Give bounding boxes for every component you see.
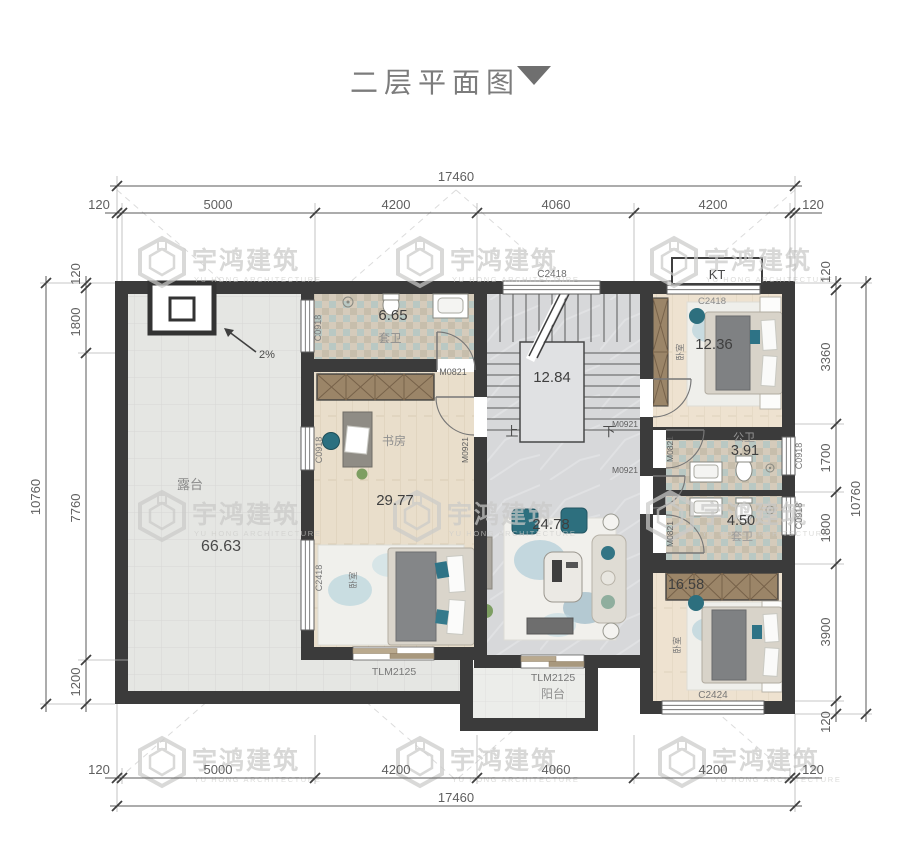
wall-left bbox=[115, 281, 128, 704]
terrace-floor bbox=[128, 294, 301, 660]
label-win-bedroom-tr: C2418 bbox=[698, 296, 726, 307]
dim-right-seg: 120 bbox=[818, 261, 833, 283]
floorplan-page: 宇鸿建筑 YU HONG ARCHITECTURE 二层平面图 bbox=[0, 0, 910, 857]
label-balcony: 阳台 bbox=[541, 686, 565, 701]
label-door-study: M0921 bbox=[460, 437, 470, 463]
dim-left-seg: 1800 bbox=[68, 308, 83, 337]
wall-ensuite-br-divider bbox=[666, 560, 795, 573]
area-bath-top: 6.65 bbox=[378, 307, 407, 324]
dim-left-seg: 1200 bbox=[68, 668, 83, 697]
label-win-bath-top: C0918 bbox=[313, 315, 323, 342]
dim-bottom-seg: 4200 bbox=[699, 762, 728, 777]
label-door-passage: M0921 bbox=[612, 465, 638, 475]
dim-right-total: 10760 bbox=[848, 481, 863, 517]
dim-top-total: 17460 bbox=[438, 169, 474, 184]
label-door-bedroom-tr: M0921 bbox=[612, 419, 638, 429]
wall-baths-divider bbox=[666, 490, 795, 496]
label-win-stair-top: C2418 bbox=[537, 269, 567, 280]
label-bedroom-tr: 卧室 bbox=[675, 343, 685, 361]
dim-top-seg: 120 bbox=[88, 197, 110, 212]
label-slope: 2% bbox=[259, 349, 275, 361]
dim-top-seg: 4200 bbox=[382, 197, 411, 212]
area-bedroom-tr: 12.36 bbox=[695, 336, 733, 353]
wall-balcony-bottom bbox=[460, 718, 598, 731]
label-bedroom-br: 卧室 bbox=[672, 636, 682, 654]
area-bath-ensuite: 4.50 bbox=[727, 513, 755, 529]
chimney bbox=[150, 283, 214, 333]
area-hall: 24.78 bbox=[532, 516, 570, 533]
slider-balcony bbox=[521, 655, 584, 668]
label-win-bedroom-left: C2418 bbox=[314, 565, 324, 592]
label-door-bath-shared: M0821 bbox=[665, 436, 675, 462]
dim-bottom-seg: 120 bbox=[88, 762, 110, 777]
dim-top-seg: 4060 bbox=[542, 197, 571, 212]
area-bath-shared: 3.91 bbox=[731, 443, 759, 459]
label-door-bath-top: M0821 bbox=[439, 367, 467, 377]
area-terrace: 66.63 bbox=[201, 538, 241, 555]
dim-top-seg: 5000 bbox=[204, 197, 233, 212]
dim-left-seg: 7760 bbox=[68, 494, 83, 523]
wall-study-hall-divider bbox=[474, 294, 487, 655]
label-terrace: 露台 bbox=[177, 477, 203, 492]
label-slider-balcony: TLM2125 bbox=[531, 672, 576, 684]
wall-bottom-left bbox=[115, 691, 473, 704]
dim-top-seg: 4200 bbox=[699, 197, 728, 212]
area-stairs: 12.84 bbox=[533, 369, 571, 386]
dim-bottom-seg: 5000 bbox=[204, 762, 233, 777]
bath-shared-floor bbox=[666, 440, 782, 490]
label-door-bath-ensuite: M0821 bbox=[665, 521, 675, 547]
window-bedroom-br bbox=[662, 701, 764, 714]
label-win-study: C0918 bbox=[314, 437, 324, 464]
label-win-bath-ensuite: C0918 bbox=[794, 503, 804, 530]
label-win-bath-shared: C0918 bbox=[794, 443, 804, 470]
dim-bottom-seg: 4200 bbox=[382, 762, 411, 777]
dim-right-seg: 120 bbox=[818, 711, 833, 733]
dim-right-seg: 3360 bbox=[818, 343, 833, 372]
label-win-bedroom-br: C2424 bbox=[698, 690, 728, 701]
dim-bottom-seg: 120 bbox=[802, 762, 824, 777]
dim-right-seg: 3900 bbox=[818, 618, 833, 647]
label-study: 书房 bbox=[382, 433, 406, 448]
window-bedroom-left bbox=[301, 540, 314, 630]
label-bedroom-left: 卧室 bbox=[348, 571, 358, 589]
area-bedroom-br: 16.58 bbox=[668, 577, 704, 593]
title-triangle-icon bbox=[517, 66, 551, 85]
label-bath-top: 套卫 bbox=[379, 332, 402, 345]
label-slider-bedroom-left: TLM2125 bbox=[372, 666, 417, 678]
dim-right-seg: 1700 bbox=[818, 444, 833, 473]
watermark bbox=[140, 238, 321, 286]
page-title: 二层平面图 bbox=[350, 67, 520, 98]
area-bedroom-left: 29.77 bbox=[376, 492, 414, 509]
window-study bbox=[301, 427, 314, 470]
dim-left-seg: 120 bbox=[68, 263, 83, 285]
label-ac-platform: KT bbox=[709, 267, 726, 282]
wall-balcony-right bbox=[585, 655, 598, 731]
bed-bedroom-left bbox=[318, 545, 474, 645]
label-stairs-up: 上 bbox=[505, 424, 518, 439]
label-bath-ensuite: 套卫 bbox=[731, 530, 753, 543]
wardrobe-study bbox=[317, 374, 434, 400]
slider-bedroom-left bbox=[353, 647, 434, 660]
wall-hall-bottom-a bbox=[474, 655, 521, 668]
floorplan-drawing: 宇鸿建筑 YU HONG ARCHITECTURE 二层平面图 bbox=[0, 0, 910, 857]
dim-bottom-total: 17460 bbox=[438, 790, 474, 805]
dim-top-seg: 120 bbox=[802, 197, 824, 212]
dim-right-seg: 1800 bbox=[818, 514, 833, 543]
dim-left-total: 10760 bbox=[28, 479, 43, 515]
dim-bottom-seg: 4060 bbox=[542, 762, 571, 777]
drawing-title-block: 二层平面图 bbox=[350, 66, 551, 98]
